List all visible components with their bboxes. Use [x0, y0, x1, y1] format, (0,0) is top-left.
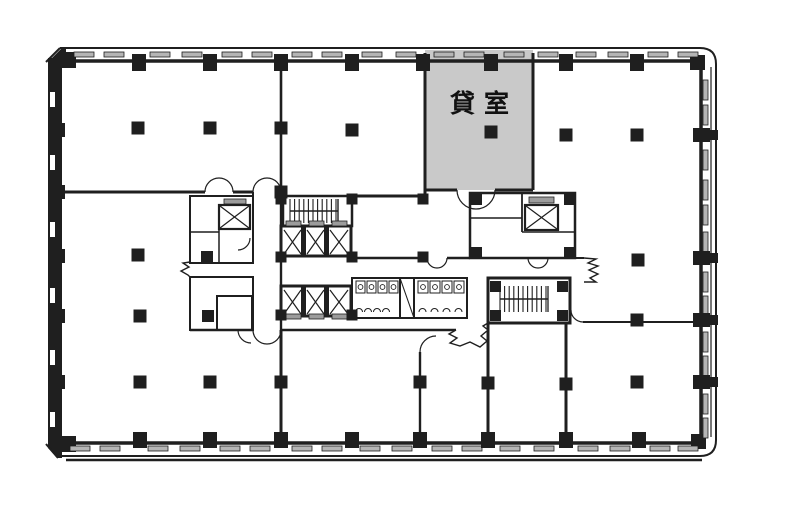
column: [345, 432, 359, 448]
window-slit: [50, 222, 55, 237]
window-mullion: [360, 446, 380, 451]
window-mullion: [70, 446, 90, 451]
window-mullion: [703, 232, 708, 252]
column: [414, 376, 427, 389]
west-core-block: [190, 196, 253, 330]
column: [630, 54, 644, 71]
toilet-fixture: [433, 285, 438, 290]
elevator-door-mark: [529, 197, 554, 203]
window-mullion: [650, 446, 670, 451]
window-mullion: [392, 446, 412, 451]
urinal: [374, 309, 381, 313]
toilet-stall: [378, 281, 387, 293]
elevator-door-mark: [332, 314, 347, 319]
window-mullion: [703, 205, 708, 225]
window-mullion: [703, 356, 708, 376]
column-grid: [48, 54, 718, 448]
window-mullion: [538, 52, 558, 57]
elevator-bank-north: [281, 221, 351, 256]
column: [693, 251, 710, 265]
window-mullion: [500, 446, 520, 451]
column: [346, 124, 359, 137]
column: [345, 54, 359, 71]
toilet-stall: [454, 281, 464, 293]
elevator-bank-south: [281, 286, 351, 319]
window-slit: [50, 155, 55, 170]
window-mullion: [150, 52, 170, 57]
toilet-fixture: [445, 285, 450, 290]
window-mullion: [703, 418, 708, 438]
column: [134, 376, 147, 389]
column: [48, 309, 65, 323]
column: [204, 376, 217, 389]
column: [347, 252, 358, 263]
column: [484, 54, 498, 71]
window-mullion: [432, 446, 452, 451]
freight-elevator: [525, 205, 558, 230]
elevator-door-mark: [286, 221, 301, 226]
service-elevator: [219, 205, 250, 229]
column: [133, 432, 147, 448]
toilet-fixture: [421, 285, 426, 290]
window-mullion: [362, 52, 382, 57]
column: [204, 122, 217, 135]
window-mullion: [678, 52, 698, 57]
window-mullion: [534, 446, 554, 451]
window-mullion: [292, 52, 312, 57]
window-mullion: [610, 446, 630, 451]
column: [276, 194, 287, 205]
urinal: [383, 309, 390, 313]
window-mullion: [252, 52, 272, 57]
window-mullion: [222, 52, 242, 57]
elevator-door-mark: [309, 221, 324, 226]
column: [48, 185, 65, 199]
column: [710, 253, 718, 263]
window-mullion: [576, 52, 596, 57]
window-mullion: [322, 52, 342, 57]
window-mullion: [74, 52, 94, 57]
column: [560, 378, 573, 391]
window-mullion: [462, 446, 482, 451]
window-mullion: [100, 446, 120, 451]
rental-room-label: 貸室: [450, 89, 518, 118]
window-mullion: [220, 446, 240, 451]
window-mullion: [434, 52, 454, 57]
window-mullion: [322, 446, 342, 451]
column: [482, 377, 495, 390]
column: [132, 249, 145, 262]
sink: [455, 309, 462, 313]
window-mullion: [608, 52, 628, 57]
window-mullion: [703, 105, 708, 125]
column: [48, 123, 65, 137]
column: [632, 432, 646, 448]
toilet-fixture: [380, 285, 385, 290]
column: [132, 122, 145, 135]
column: [347, 310, 358, 321]
window-mullion: [703, 180, 708, 200]
column: [710, 130, 718, 140]
toilet-fixture: [358, 285, 363, 290]
rental-room-highlight: [425, 50, 533, 190]
window-mullion: [464, 52, 484, 57]
corridor-break-west: [181, 262, 190, 277]
column: [559, 54, 573, 71]
south-staircase: [488, 278, 570, 323]
window-mullion: [292, 446, 312, 451]
column: [481, 432, 495, 448]
rental-room: [425, 50, 533, 190]
east-core-block: [470, 193, 575, 258]
corridor-break-east: [584, 258, 598, 282]
column: [632, 254, 645, 267]
column: [631, 376, 644, 389]
corridor-break-south: [449, 323, 488, 347]
exterior-wall: [46, 48, 716, 460]
window-mullion: [703, 150, 708, 170]
column: [203, 54, 217, 71]
window-slit: [50, 350, 55, 365]
elevator-door-mark: [224, 199, 246, 204]
window-mullion: [396, 52, 416, 57]
column: [710, 377, 718, 387]
window-mullion: [578, 446, 598, 451]
toilet-fixture: [457, 285, 462, 290]
column: [347, 194, 358, 205]
interior-walls: [57, 53, 701, 443]
toilet-stall: [430, 281, 440, 293]
column: [203, 432, 217, 448]
window-slit: [50, 288, 55, 303]
column: [48, 249, 65, 263]
column: [416, 54, 430, 71]
column: [631, 129, 644, 142]
window-slit: [50, 92, 55, 107]
elevator-door-mark: [286, 314, 301, 319]
column: [485, 126, 498, 139]
column: [631, 314, 644, 327]
column: [413, 432, 427, 448]
window-mullion: [703, 272, 708, 292]
corner-column: [60, 52, 76, 68]
toilet-stall: [442, 281, 452, 293]
column: [274, 54, 288, 71]
window-mullion: [703, 394, 708, 414]
sink: [419, 309, 426, 313]
column: [693, 128, 710, 142]
window-mullion: [648, 52, 668, 57]
floorplan-page: 貸室: [0, 0, 787, 522]
floorplan-drawing: 貸室: [0, 0, 787, 522]
urinal: [365, 309, 372, 313]
column: [274, 432, 288, 448]
window-mullion: [180, 446, 200, 451]
elevator-shaft-x: [284, 290, 301, 314]
window-mullion: [703, 80, 708, 100]
column: [276, 310, 287, 321]
core: [190, 193, 575, 330]
elevator-shaft-x: [330, 290, 348, 314]
window-mullions: [50, 52, 708, 451]
elevator-shaft-x: [330, 230, 348, 254]
window-mullion: [182, 52, 202, 57]
toilet-stall: [389, 281, 398, 293]
window-mullion: [703, 332, 708, 352]
toilet-fixture: [369, 285, 374, 290]
window-mullion: [104, 52, 124, 57]
toilet-stall: [367, 281, 376, 293]
column: [560, 129, 573, 142]
window-mullion: [148, 446, 168, 451]
window-slit: [50, 412, 55, 427]
window-mullion: [504, 52, 524, 57]
toilet-stall: [418, 281, 428, 293]
column: [418, 194, 429, 205]
column: [693, 375, 710, 389]
window-mullion: [678, 446, 698, 451]
column: [693, 313, 710, 327]
elevator-door-mark: [309, 314, 324, 319]
sink: [443, 309, 450, 313]
elevator-shaft-x: [307, 290, 324, 314]
column: [276, 252, 287, 263]
window-mullion: [250, 446, 270, 451]
toilet-fixture: [391, 285, 396, 290]
column: [559, 432, 573, 448]
elevator-door-mark: [332, 221, 347, 226]
column: [275, 122, 288, 135]
column: [275, 376, 288, 389]
column: [710, 315, 718, 325]
toilet-stall: [356, 281, 365, 293]
column: [48, 375, 65, 389]
column: [132, 54, 146, 71]
column: [134, 310, 147, 323]
elevator-shaft-x: [307, 230, 324, 254]
elevator-shaft-x: [284, 230, 301, 254]
column: [418, 252, 429, 263]
sink: [431, 309, 438, 313]
